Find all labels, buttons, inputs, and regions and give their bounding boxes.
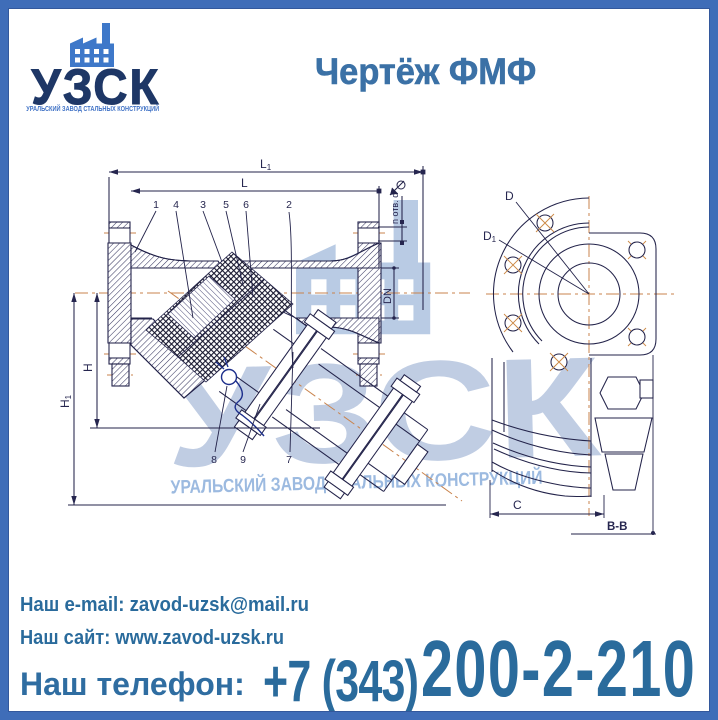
svg-text:7: 7 [286, 454, 292, 466]
svg-text:5: 5 [223, 199, 229, 211]
svg-text:L: L [241, 176, 248, 190]
svg-text:9: 9 [240, 454, 246, 466]
svg-text:3: 3 [200, 199, 206, 211]
svg-text:В-В: В-В [607, 521, 627, 533]
svg-text:4: 4 [173, 199, 179, 211]
svg-text:2: 2 [286, 199, 292, 211]
svg-text:n отв. d: n отв. d [390, 193, 400, 224]
svg-text:8: 8 [211, 454, 217, 466]
svg-text:H: H [81, 363, 95, 372]
svg-text:L1: L1 [260, 157, 272, 172]
svg-text:1: 1 [153, 199, 159, 211]
svg-text:H1: H1 [58, 394, 73, 408]
svg-text:DN: DN [382, 288, 394, 304]
svg-text:C: C [513, 498, 522, 512]
svg-text:D1: D1 [483, 229, 497, 244]
svg-text:6: 6 [243, 199, 249, 211]
svg-text:D: D [505, 189, 514, 203]
